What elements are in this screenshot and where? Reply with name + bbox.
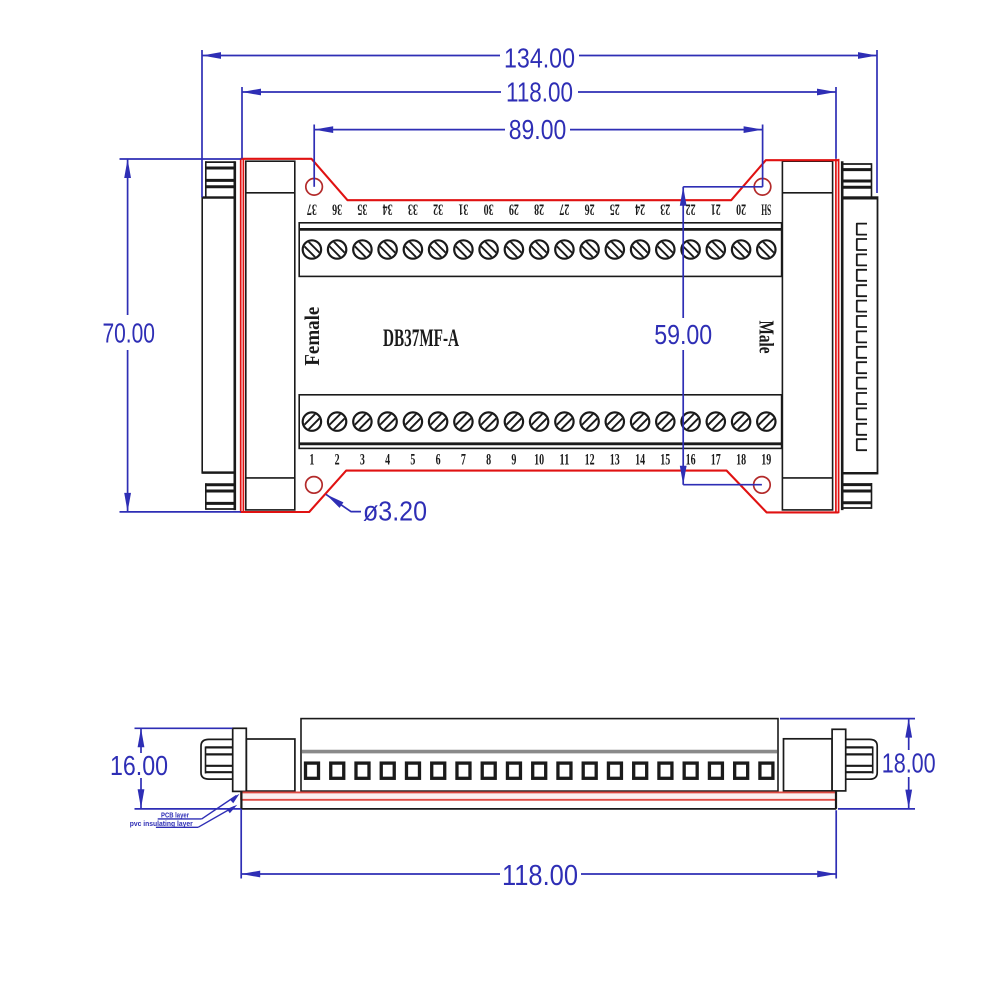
- svg-text:3: 3: [360, 451, 365, 468]
- svg-text:27: 27: [559, 201, 569, 218]
- svg-text:59.00: 59.00: [654, 319, 712, 350]
- svg-text:Female: Female: [300, 307, 324, 366]
- svg-text:1: 1: [309, 451, 314, 468]
- svg-text:4: 4: [385, 451, 390, 468]
- svg-text:134.00: 134.00: [504, 43, 575, 74]
- svg-text:34: 34: [382, 201, 392, 218]
- svg-text:24: 24: [635, 201, 645, 218]
- svg-text:13: 13: [610, 451, 620, 468]
- svg-text:18.00: 18.00: [882, 748, 936, 779]
- svg-text:31: 31: [458, 201, 468, 218]
- svg-text:19: 19: [761, 451, 771, 468]
- svg-text:15: 15: [660, 451, 670, 468]
- svg-text:22: 22: [685, 201, 695, 218]
- svg-text:36: 36: [332, 201, 342, 218]
- svg-text:16: 16: [686, 451, 696, 468]
- svg-text:ø3.20: ø3.20: [363, 496, 427, 527]
- svg-text:18: 18: [736, 451, 746, 468]
- svg-text:20: 20: [736, 201, 746, 218]
- svg-text:9: 9: [511, 451, 516, 468]
- svg-text:8: 8: [486, 451, 491, 468]
- svg-text:5: 5: [410, 451, 415, 468]
- svg-text:118.00: 118.00: [502, 860, 578, 892]
- svg-text:12: 12: [585, 451, 595, 468]
- svg-text:33: 33: [408, 201, 418, 218]
- svg-text:7: 7: [461, 451, 466, 468]
- svg-text:21: 21: [711, 201, 721, 218]
- svg-text:70.00: 70.00: [102, 318, 155, 349]
- svg-text:pvc insulating layer: pvc insulating layer: [130, 821, 193, 828]
- svg-text:23: 23: [660, 201, 670, 218]
- svg-text:10: 10: [534, 451, 544, 468]
- svg-text:Male: Male: [754, 321, 778, 354]
- svg-text:DB37MF-A: DB37MF-A: [383, 325, 459, 352]
- svg-text:29: 29: [509, 201, 519, 218]
- svg-text:16.00: 16.00: [110, 750, 168, 781]
- svg-text:PCB layer: PCB layer: [161, 813, 189, 820]
- svg-text:35: 35: [357, 201, 367, 218]
- svg-text:118.00: 118.00: [506, 77, 573, 108]
- svg-text:25: 25: [610, 201, 620, 218]
- svg-text:30: 30: [483, 201, 493, 218]
- svg-text:37: 37: [307, 201, 317, 218]
- svg-text:89.00: 89.00: [509, 114, 567, 145]
- svg-text:SH: SH: [761, 201, 771, 218]
- svg-text:26: 26: [584, 201, 594, 218]
- svg-text:17: 17: [711, 451, 721, 468]
- svg-text:14: 14: [635, 451, 645, 468]
- svg-text:2: 2: [335, 451, 340, 468]
- svg-text:6: 6: [436, 451, 441, 468]
- svg-text:11: 11: [559, 451, 569, 468]
- svg-text:32: 32: [433, 201, 443, 218]
- svg-text:28: 28: [534, 201, 544, 218]
